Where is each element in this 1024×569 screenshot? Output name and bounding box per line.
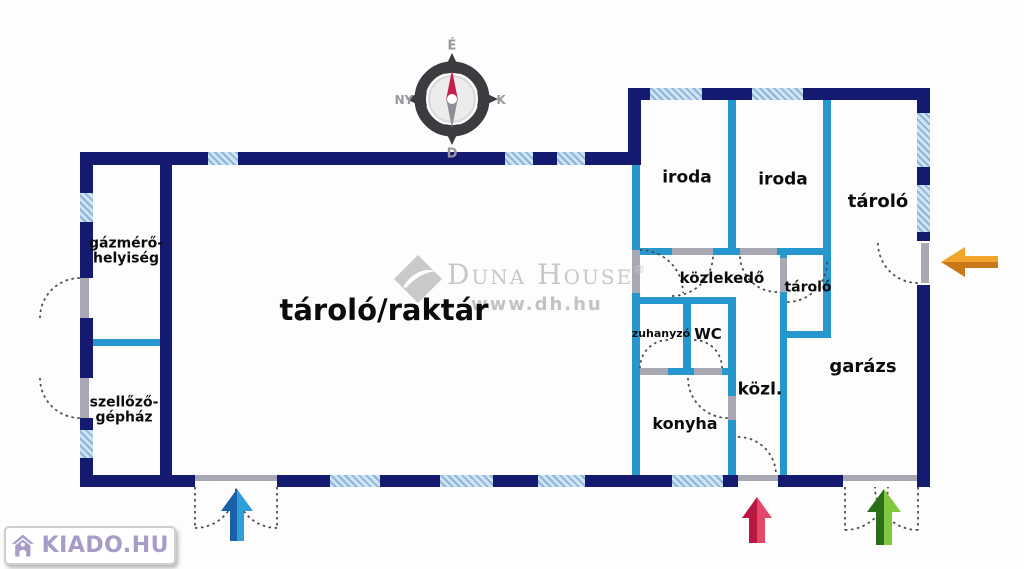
- room-label-tarolo-right: tároló: [848, 192, 909, 212]
- window: [752, 88, 803, 100]
- compass-label-north: É: [448, 39, 457, 54]
- room-label-wc: WC: [694, 326, 722, 343]
- compass-needle-north: [446, 70, 458, 100]
- window: [557, 152, 585, 165]
- entrance-arrow-red: [742, 497, 772, 543]
- door-swing-arc: [878, 243, 918, 283]
- window: [917, 185, 930, 232]
- room-label-line: gázmérő-: [89, 236, 163, 252]
- compass-spike-south: [443, 119, 461, 145]
- door-swing-arc: [40, 378, 80, 418]
- compass-label-east: K: [496, 93, 505, 107]
- room-label-zuhanyzo: zuhanyzó: [632, 328, 690, 340]
- room-label-garazs: garázs: [829, 357, 896, 377]
- room-label-line: szellőző-: [90, 395, 159, 411]
- wall-inner-raktar-right: [632, 165, 640, 475]
- room-label-iroda-2: iroda: [758, 171, 808, 190]
- door-swing-arc: [195, 487, 236, 528]
- door-swing-arc: [845, 487, 888, 530]
- watermark-brand-text: Duna House: [447, 258, 633, 291]
- door-swing-arc: [738, 437, 776, 475]
- wall-inner-tarolo-right: [823, 100, 831, 338]
- watermark-registered-mark: ®: [633, 263, 647, 277]
- door-swing-arc: [40, 278, 80, 318]
- room-label-raktar: tároló/raktár: [279, 295, 488, 327]
- door-lintel: [728, 396, 736, 420]
- door-swing-arc: [640, 340, 668, 368]
- door-lintel: [80, 378, 89, 418]
- kiado-house-icon: [11, 532, 35, 559]
- entrance-arrow-orange: [941, 247, 998, 277]
- right-door-lintel: [921, 243, 929, 283]
- room-label-line: gépház: [95, 410, 152, 426]
- window: [208, 152, 238, 165]
- window: [80, 430, 93, 458]
- floor-plan: É D NY K Duna House® www.dh.hu gázmérő- …: [0, 0, 1024, 569]
- compass-needle-south: [446, 98, 458, 128]
- wall-inner-tarolo-kis-bottom: [780, 331, 831, 338]
- wall-inner-gazmero-szellozo: [93, 339, 160, 346]
- compass-spike-east: [472, 90, 498, 108]
- door-lintel: [640, 368, 668, 375]
- door-lintel: [694, 368, 722, 375]
- dunahouse-watermark: Duna House®: [447, 258, 647, 291]
- door-swing-arc: [875, 487, 918, 530]
- room-label-tarolo-small: tároló: [784, 280, 831, 295]
- window: [505, 152, 533, 165]
- wall-inner-kozl-left: [728, 304, 736, 475]
- wall-inner-kozlekedo-bottom: [640, 297, 736, 304]
- room-label-kozl: közl.: [738, 381, 783, 400]
- room-label-gazmero: gázmérő- helyiség: [89, 237, 163, 268]
- door-lintel: [80, 278, 89, 318]
- entrance-arrow-green: [867, 489, 901, 545]
- entrance-door-lintel: [195, 475, 277, 481]
- wall-inner-iroda-divider: [728, 100, 736, 248]
- kozl-door-lintel: [738, 475, 778, 481]
- window: [330, 475, 380, 487]
- window: [538, 475, 585, 487]
- room-label-konyha: konyha: [652, 415, 717, 433]
- window: [650, 88, 702, 100]
- entrance-arrow-blue: [221, 489, 253, 541]
- dunahouse-watermark-url: www.dh.hu: [471, 294, 603, 315]
- door-lintel: [672, 248, 713, 255]
- window: [80, 193, 93, 222]
- compass-rose: [406, 53, 498, 145]
- compass-label-south: D: [447, 147, 458, 162]
- door-swing-arc: [694, 340, 722, 368]
- door-swing-arc: [688, 378, 728, 418]
- wall-inner-iroda-bottom: [640, 248, 831, 255]
- wall-main-divider: [160, 152, 172, 487]
- compass-spike-north: [443, 53, 461, 79]
- room-label-kozlekedo: közlekedő: [680, 270, 765, 287]
- room-label-iroda-1: iroda: [662, 169, 712, 188]
- window: [917, 113, 930, 167]
- garage-door-lintel: [843, 475, 917, 481]
- door-lintel: [740, 248, 777, 255]
- room-label-line: helyiség: [93, 251, 159, 267]
- window: [672, 475, 723, 487]
- kiado-logo-text: KIADO.HU: [42, 533, 169, 558]
- door-swing-arc: [236, 487, 277, 528]
- kiado-logo: KIADO.HU: [4, 526, 176, 565]
- room-label-szellozo: szellőző- gépház: [90, 396, 159, 427]
- window: [440, 475, 493, 487]
- compass-label-west: NY: [395, 93, 414, 107]
